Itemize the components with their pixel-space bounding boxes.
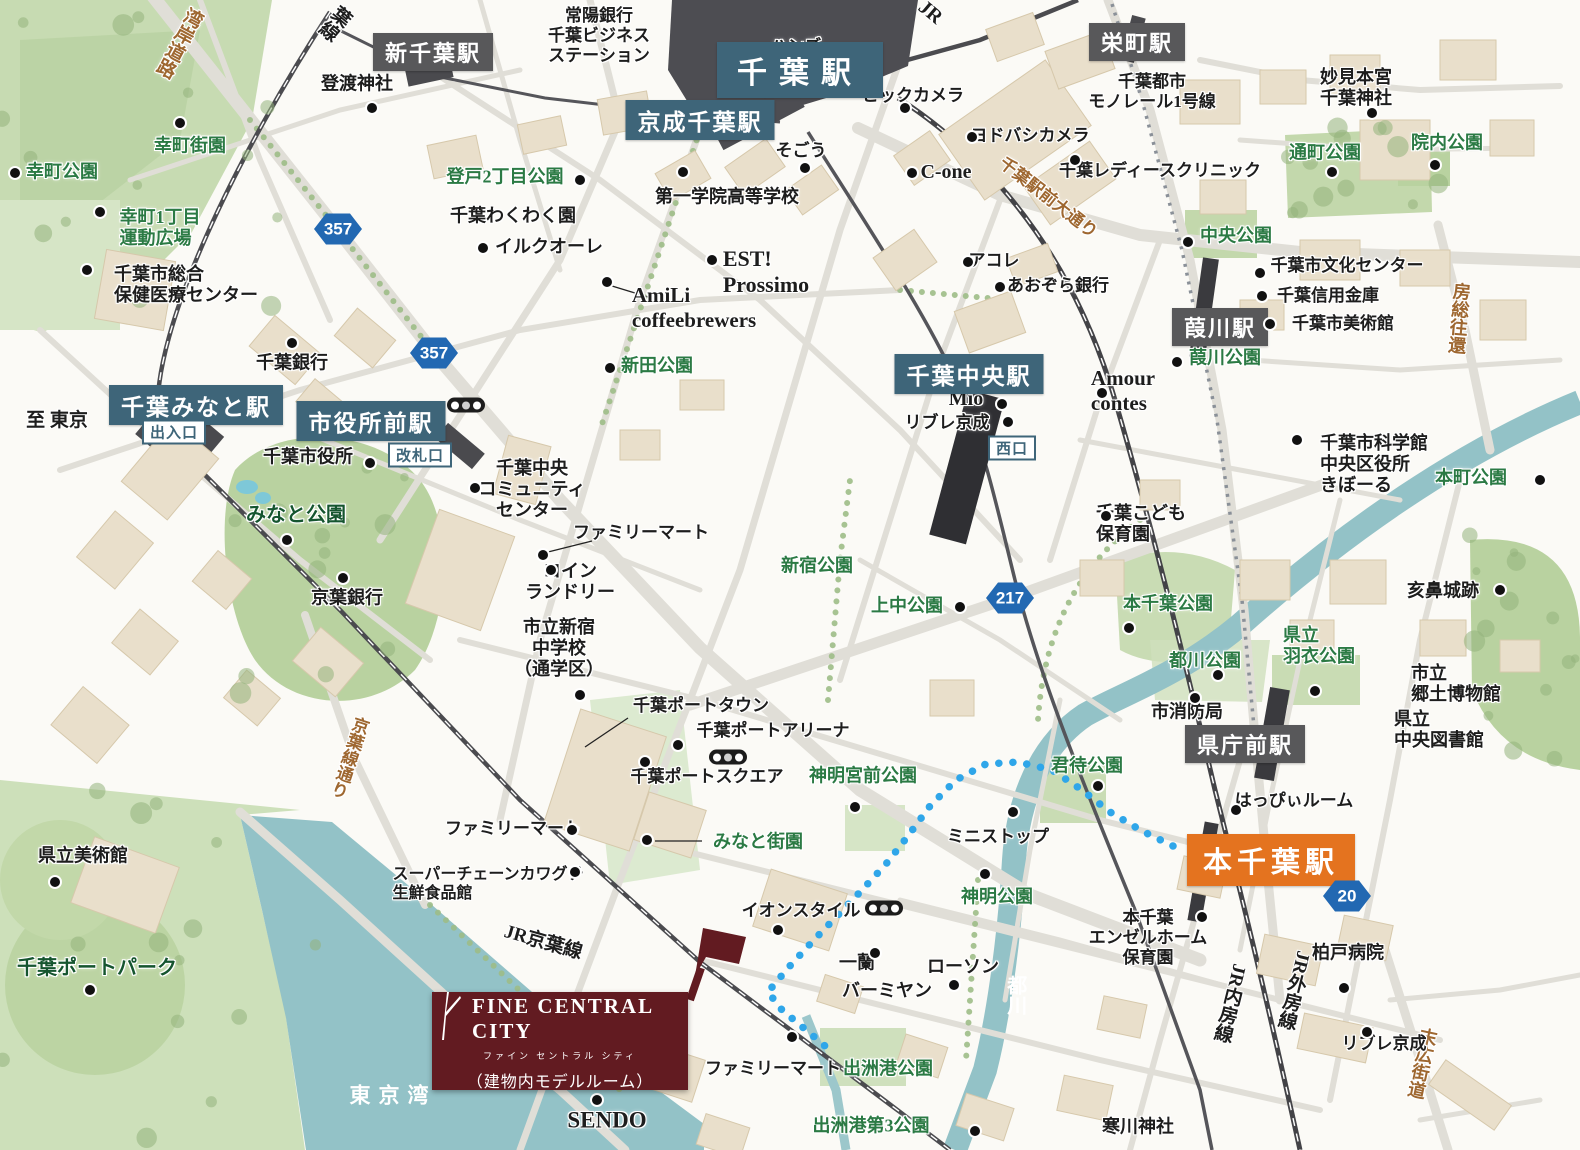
poi-dot: [1124, 623, 1134, 633]
poi-dot: [365, 458, 375, 468]
place-label: ローソン: [927, 956, 999, 977]
poi-dot: [338, 573, 348, 583]
park-label: 君待公園: [1051, 755, 1123, 776]
place-label: 登渡神社: [321, 73, 393, 94]
poi-dot: [478, 243, 488, 253]
place-label: 常陽銀行 千葉ビジネス ステーション: [548, 6, 650, 66]
park-label: みなと街園: [713, 831, 803, 852]
poi-dot: [850, 802, 860, 812]
poi-dot: [367, 103, 377, 113]
park-label: 幸町公園: [26, 161, 98, 182]
place-label: 千葉ポートスクエア: [631, 767, 784, 787]
poi-dot: [800, 163, 810, 173]
place-label: はっぴぃルーム: [1235, 791, 1354, 811]
place-label: ファミリーマート: [573, 523, 709, 543]
poi-dot: [567, 825, 577, 835]
poi-dot: [967, 132, 977, 142]
poi-dot: [642, 835, 652, 845]
park-label: 千葉ポートパーク: [17, 957, 177, 981]
poi-dot: [787, 1032, 797, 1042]
station-badge: 栄町駅: [1089, 23, 1185, 61]
station-badge: 葭川駅: [1172, 308, 1268, 346]
park-label: 幸町1丁目 運動広場: [120, 207, 201, 249]
model-room-note: （建物内モデルルーム）: [467, 1068, 654, 1092]
poi-dot: [955, 602, 965, 612]
poi-dot: [1327, 167, 1337, 177]
poi-dot: [470, 483, 480, 493]
poi-dot: [707, 255, 717, 265]
place-label: 千葉市総合 保健医療センター: [114, 264, 258, 306]
place-label: 県立美術館: [38, 845, 128, 866]
place-label: 千葉銀行: [256, 352, 328, 373]
traffic-light-icon: [865, 901, 903, 916]
place-label: C-one: [920, 161, 971, 185]
poi-dot: [85, 985, 95, 995]
poi-dot: [1257, 291, 1267, 301]
park-label: 幸町街園: [154, 135, 226, 156]
place-label: 京葉銀行: [311, 587, 383, 608]
poi-dot: [1255, 268, 1265, 278]
poi-dot: [1231, 805, 1241, 815]
place-label: 千葉レディースクリニック: [1059, 161, 1261, 181]
place-label: 千葉市科学館 中央区役所 きぼーる: [1320, 433, 1428, 497]
poi-dot: [1093, 781, 1103, 791]
place-label: コイン ランドリー: [525, 561, 615, 603]
poi-dot: [570, 867, 580, 877]
poi-dot: [1367, 108, 1377, 118]
place-label: 本千葉 エンゼルホーム 保育園: [1089, 908, 1208, 968]
place-label: ファミリーマート: [705, 1059, 841, 1079]
park-label: 本千葉公園: [1123, 593, 1213, 614]
station-badge: 京成千葉駅: [626, 100, 775, 140]
place-label: 至 東京: [26, 410, 88, 432]
station-badge: 市役所前駅: [297, 401, 446, 441]
poi-dot: [602, 277, 612, 287]
place-label: ヨドバシカメラ: [971, 126, 1090, 146]
poi-dot: [95, 207, 105, 217]
place-label: 第一学院高等学校: [655, 186, 799, 207]
poi-dot: [1172, 357, 1182, 367]
traffic-light-icon: [447, 398, 485, 413]
poi-dot: [1339, 983, 1349, 993]
poi-dot: [605, 363, 615, 373]
poi-dot: [1292, 435, 1302, 445]
place-label: そごう: [776, 141, 827, 161]
place-label: 千葉市役所: [263, 446, 353, 467]
poi-dot: [907, 168, 917, 178]
poi-dot: [900, 103, 910, 113]
poi-dot: [575, 690, 585, 700]
place-label: 寒川神社: [1102, 1116, 1174, 1137]
place-label: 千葉こども 保育園: [1096, 503, 1186, 545]
park-label: 院内公園: [1411, 132, 1483, 153]
poi-dot: [10, 168, 20, 178]
station-badge: 千葉中央駅: [895, 354, 1044, 394]
poi-dot: [640, 757, 650, 767]
place-label: SENDO: [567, 1106, 646, 1133]
brand-logo-box: FINE CENTRAL CITY ファイン セントラル シティ （建物内モデル…: [432, 992, 688, 1090]
poi-dot: [870, 948, 880, 958]
station-badge: 新千葉駅: [373, 33, 493, 71]
poi-dot: [592, 1095, 602, 1105]
poi-dot: [1070, 155, 1080, 165]
poi-dot: [1362, 1027, 1372, 1037]
park-label: みなと公園: [246, 504, 346, 528]
water-label: 東京湾: [350, 1084, 437, 1109]
place-label: 県立 中央図書館: [1394, 709, 1484, 751]
poi-dot: [50, 877, 60, 887]
poi-dot: [1183, 237, 1193, 247]
poi-dot: [1495, 585, 1505, 595]
place-label: 市消防局: [1151, 701, 1223, 722]
poi-dot: [970, 1126, 980, 1136]
poi-dot: [1430, 160, 1440, 170]
place-label: 千葉中央 コミュニティ センター: [479, 458, 586, 522]
poi-dot: [282, 535, 292, 545]
place-label: 千葉ポートタウン: [633, 696, 769, 716]
place-label: 千葉わくわく園: [450, 205, 576, 226]
poi-dot: [1197, 912, 1207, 922]
station-badge: 改札口: [388, 443, 452, 468]
park-label: 中央公園: [1200, 225, 1272, 246]
place-label: 千葉市文化センター: [1271, 256, 1424, 276]
place-label: イルクオーレ: [495, 236, 603, 257]
place-label: ミニストップ: [947, 827, 1049, 847]
poi-dot: [82, 265, 92, 275]
place-label: バーミヤン: [842, 980, 932, 1001]
place-label: 千葉市美術館: [1292, 314, 1394, 334]
place-label: ファミリーマート: [445, 819, 581, 839]
place-label: 市立新宿 中学校 （通学区）: [514, 617, 604, 681]
park-label: 神明公園: [961, 886, 1033, 907]
place-label: スーパーチェーンカワグチ 生鮮食品館: [392, 866, 583, 904]
poi-dot: [287, 338, 297, 348]
poi-dot: [1535, 475, 1545, 485]
park-label: 神明宮前公園: [809, 765, 917, 786]
place-label: 千葉都市 モノレール1号線: [1088, 72, 1216, 112]
park-label: 通町公園: [1289, 142, 1361, 163]
park-label: 県立 羽衣公園: [1283, 625, 1355, 667]
park-label: 出洲港第3公園: [813, 1115, 930, 1136]
poi-dot: [1097, 388, 1107, 398]
place-label: AmiLi coffeebrewers: [632, 283, 756, 333]
brand-kana: ファイン セントラル シティ: [483, 1049, 637, 1062]
poi-dot: [963, 257, 973, 267]
place-label: イオンスタイル: [742, 901, 861, 921]
station-badge: 出入口: [142, 420, 206, 445]
place-label: 千葉ポートアリーナ: [697, 721, 850, 741]
place-label: 亥鼻城跡: [1407, 580, 1479, 601]
park-label: 都川公園: [1169, 650, 1241, 671]
poi-dot: [980, 869, 990, 879]
poi-dot: [1310, 686, 1320, 696]
poi-dot: [949, 980, 959, 990]
place-label: 市立 郷土博物館: [1411, 663, 1501, 705]
place-label: 千葉信用金庫: [1277, 286, 1379, 306]
poi-dot: [538, 550, 548, 560]
station-badge: 西口: [988, 436, 1036, 461]
brand-logo-f-icon: [432, 990, 462, 1047]
place-label: リブレ京成: [1342, 1034, 1427, 1054]
park-label: 葭川公園: [1189, 347, 1261, 368]
park-label: 新宿公園: [781, 555, 853, 576]
poi-dot: [673, 740, 683, 750]
place-label: あおぞら銀行: [1007, 276, 1109, 296]
water-label: 都川: [1002, 975, 1026, 1015]
poi-dot: [1003, 417, 1013, 427]
poi-dot: [175, 118, 185, 128]
place-label: リブレ京成: [905, 413, 990, 433]
place-label: 柏戸病院: [1312, 942, 1384, 963]
access-map: 湾岸道路葉線JR常陽銀行 千葉ビジネス ステーションハンズ登渡神社千葉都市 モノ…: [0, 0, 1580, 1150]
station-badge: 千葉駅: [717, 42, 883, 98]
poi-dot: [1265, 319, 1275, 329]
poi-dot: [546, 565, 556, 575]
poi-dot: [1101, 511, 1111, 521]
traffic-light-icon: [709, 750, 747, 765]
poi-dot: [773, 925, 783, 935]
station-badge: 県庁前駅: [1185, 725, 1305, 763]
poi-dot: [678, 167, 688, 177]
park-label: 本町公園: [1435, 467, 1507, 488]
poi-dot: [1213, 670, 1223, 680]
place-label: 一蘭: [839, 952, 875, 973]
park-label: 登戸2丁目公園: [447, 166, 564, 187]
park-label: 上中公園: [871, 595, 943, 616]
poi-dot: [575, 175, 585, 185]
poi-dot: [997, 399, 1007, 409]
poi-dot: [995, 282, 1005, 292]
poi-dot: [1008, 807, 1018, 817]
poi-dot: [1190, 693, 1200, 703]
place-label: アコレ: [969, 251, 1020, 271]
brand-name: FINE CENTRAL CITY: [472, 994, 688, 1044]
park-label: 出洲港公園: [843, 1058, 933, 1079]
station-badge: 本千葉駅: [1187, 834, 1355, 886]
park-label: 新田公園: [621, 355, 693, 376]
place-label: 妙見本宮 千葉神社: [1320, 67, 1392, 109]
